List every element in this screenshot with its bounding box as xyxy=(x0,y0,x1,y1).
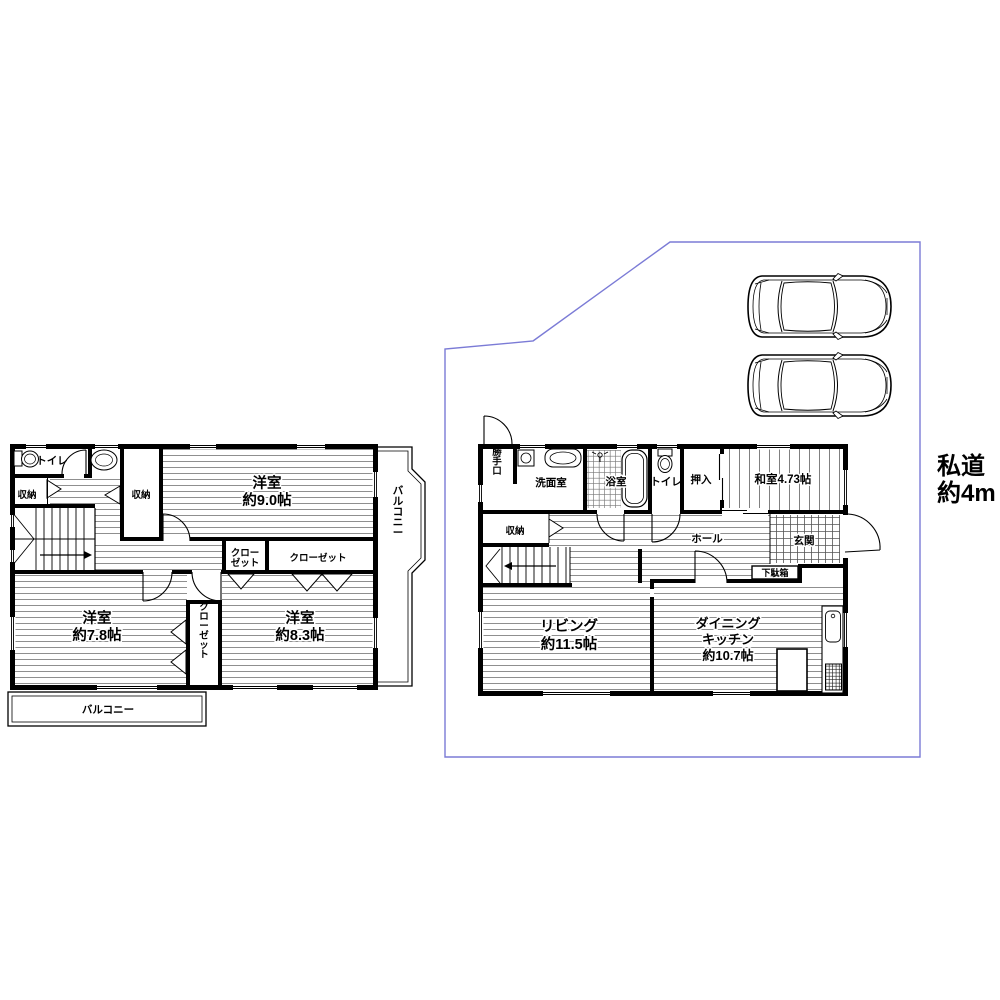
2f-bedroom9-size: 約9.0帖 xyxy=(242,491,292,509)
1f-japanese-room-label: 和室4.73帖 xyxy=(755,472,812,486)
2f-floors xyxy=(12,446,376,686)
1f-dk-line2: キッチン xyxy=(702,632,754,647)
2f-closet-small-line2: ゼット xyxy=(231,557,260,569)
road-label-line1: 私道 xyxy=(937,452,985,480)
1f-storage-label: 収納 xyxy=(505,525,524,537)
1f-hall-label: ホール xyxy=(691,533,723,545)
1f-bathroom-label: 浴室 xyxy=(606,475,627,488)
2f-closet-wide-label: クローゼット xyxy=(289,552,346,564)
car-icon xyxy=(748,274,891,340)
floor-plan-page: トイレ 収納 収納 洋室 約9.0帖 クロー ゼット クローゼット 洋室 約7.… xyxy=(0,0,1000,1000)
1f-shoe-cabinet-label: 下駄箱 xyxy=(761,567,788,578)
floor-plan-2f: トイレ 収納 収納 洋室 約9.0帖 クロー ゼット クローゼット 洋室 約7.… xyxy=(8,444,425,727)
2f-balcony-bottom-label: バルコニー xyxy=(82,704,134,716)
washbasin-fixture-1f xyxy=(545,449,581,467)
toilet-fixture-2f xyxy=(14,451,39,467)
2f-toilet-label: トイレ xyxy=(36,455,68,467)
2f-bedroom83-name: 洋室 xyxy=(286,609,315,627)
1f-toilet-label: トイレ xyxy=(650,476,682,488)
2f-closet-tall-label: クローゼット xyxy=(199,602,209,661)
car-icon xyxy=(748,353,891,419)
2f-bedroom9-name: 洋室 xyxy=(253,474,282,492)
toilet-fixture-1f xyxy=(658,449,672,473)
road-label-line2: 約4m xyxy=(937,479,996,507)
2f-bedroom83-size: 約8.3帖 xyxy=(275,626,325,644)
1f-living-size: 約11.5帖 xyxy=(541,635,598,653)
1f-back-door-label: 勝手口 xyxy=(492,446,502,477)
floor-plan-1f: 勝手口 洗面室 浴室 トイレ 押入 和室4.73帖 収納 ホール 玄関 下駄箱 … xyxy=(478,416,881,697)
road-label: 私道 約4m xyxy=(937,452,996,507)
2f-storage-mid-label: 収納 xyxy=(131,489,150,501)
2f-bedroom78-name: 洋室 xyxy=(83,609,112,627)
washing-machine-fixture xyxy=(518,450,534,466)
1f-entrance-label: 玄関 xyxy=(794,534,815,547)
2f-balcony-side-label: バルコニー xyxy=(393,485,404,539)
1f-living-name: リビング xyxy=(540,617,598,635)
1f-dk-line3: 約10.7帖 xyxy=(702,648,753,663)
2f-bedroom78-size: 約7.8帖 xyxy=(72,626,122,644)
washbasin-fixture-2f xyxy=(91,450,117,470)
1f-washroom-label: 洗面室 xyxy=(535,476,567,489)
1f-oshiire-label: 押入 xyxy=(691,473,712,486)
balcony-side-outline xyxy=(378,447,425,686)
2f-storage-left-label: 収納 xyxy=(17,489,36,501)
1f-dk-line1: ダイニング xyxy=(695,616,760,631)
floor-plan-canvas: トイレ 収納 収納 洋室 約9.0帖 クロー ゼット クローゼット 洋室 約7.… xyxy=(0,0,1000,1000)
